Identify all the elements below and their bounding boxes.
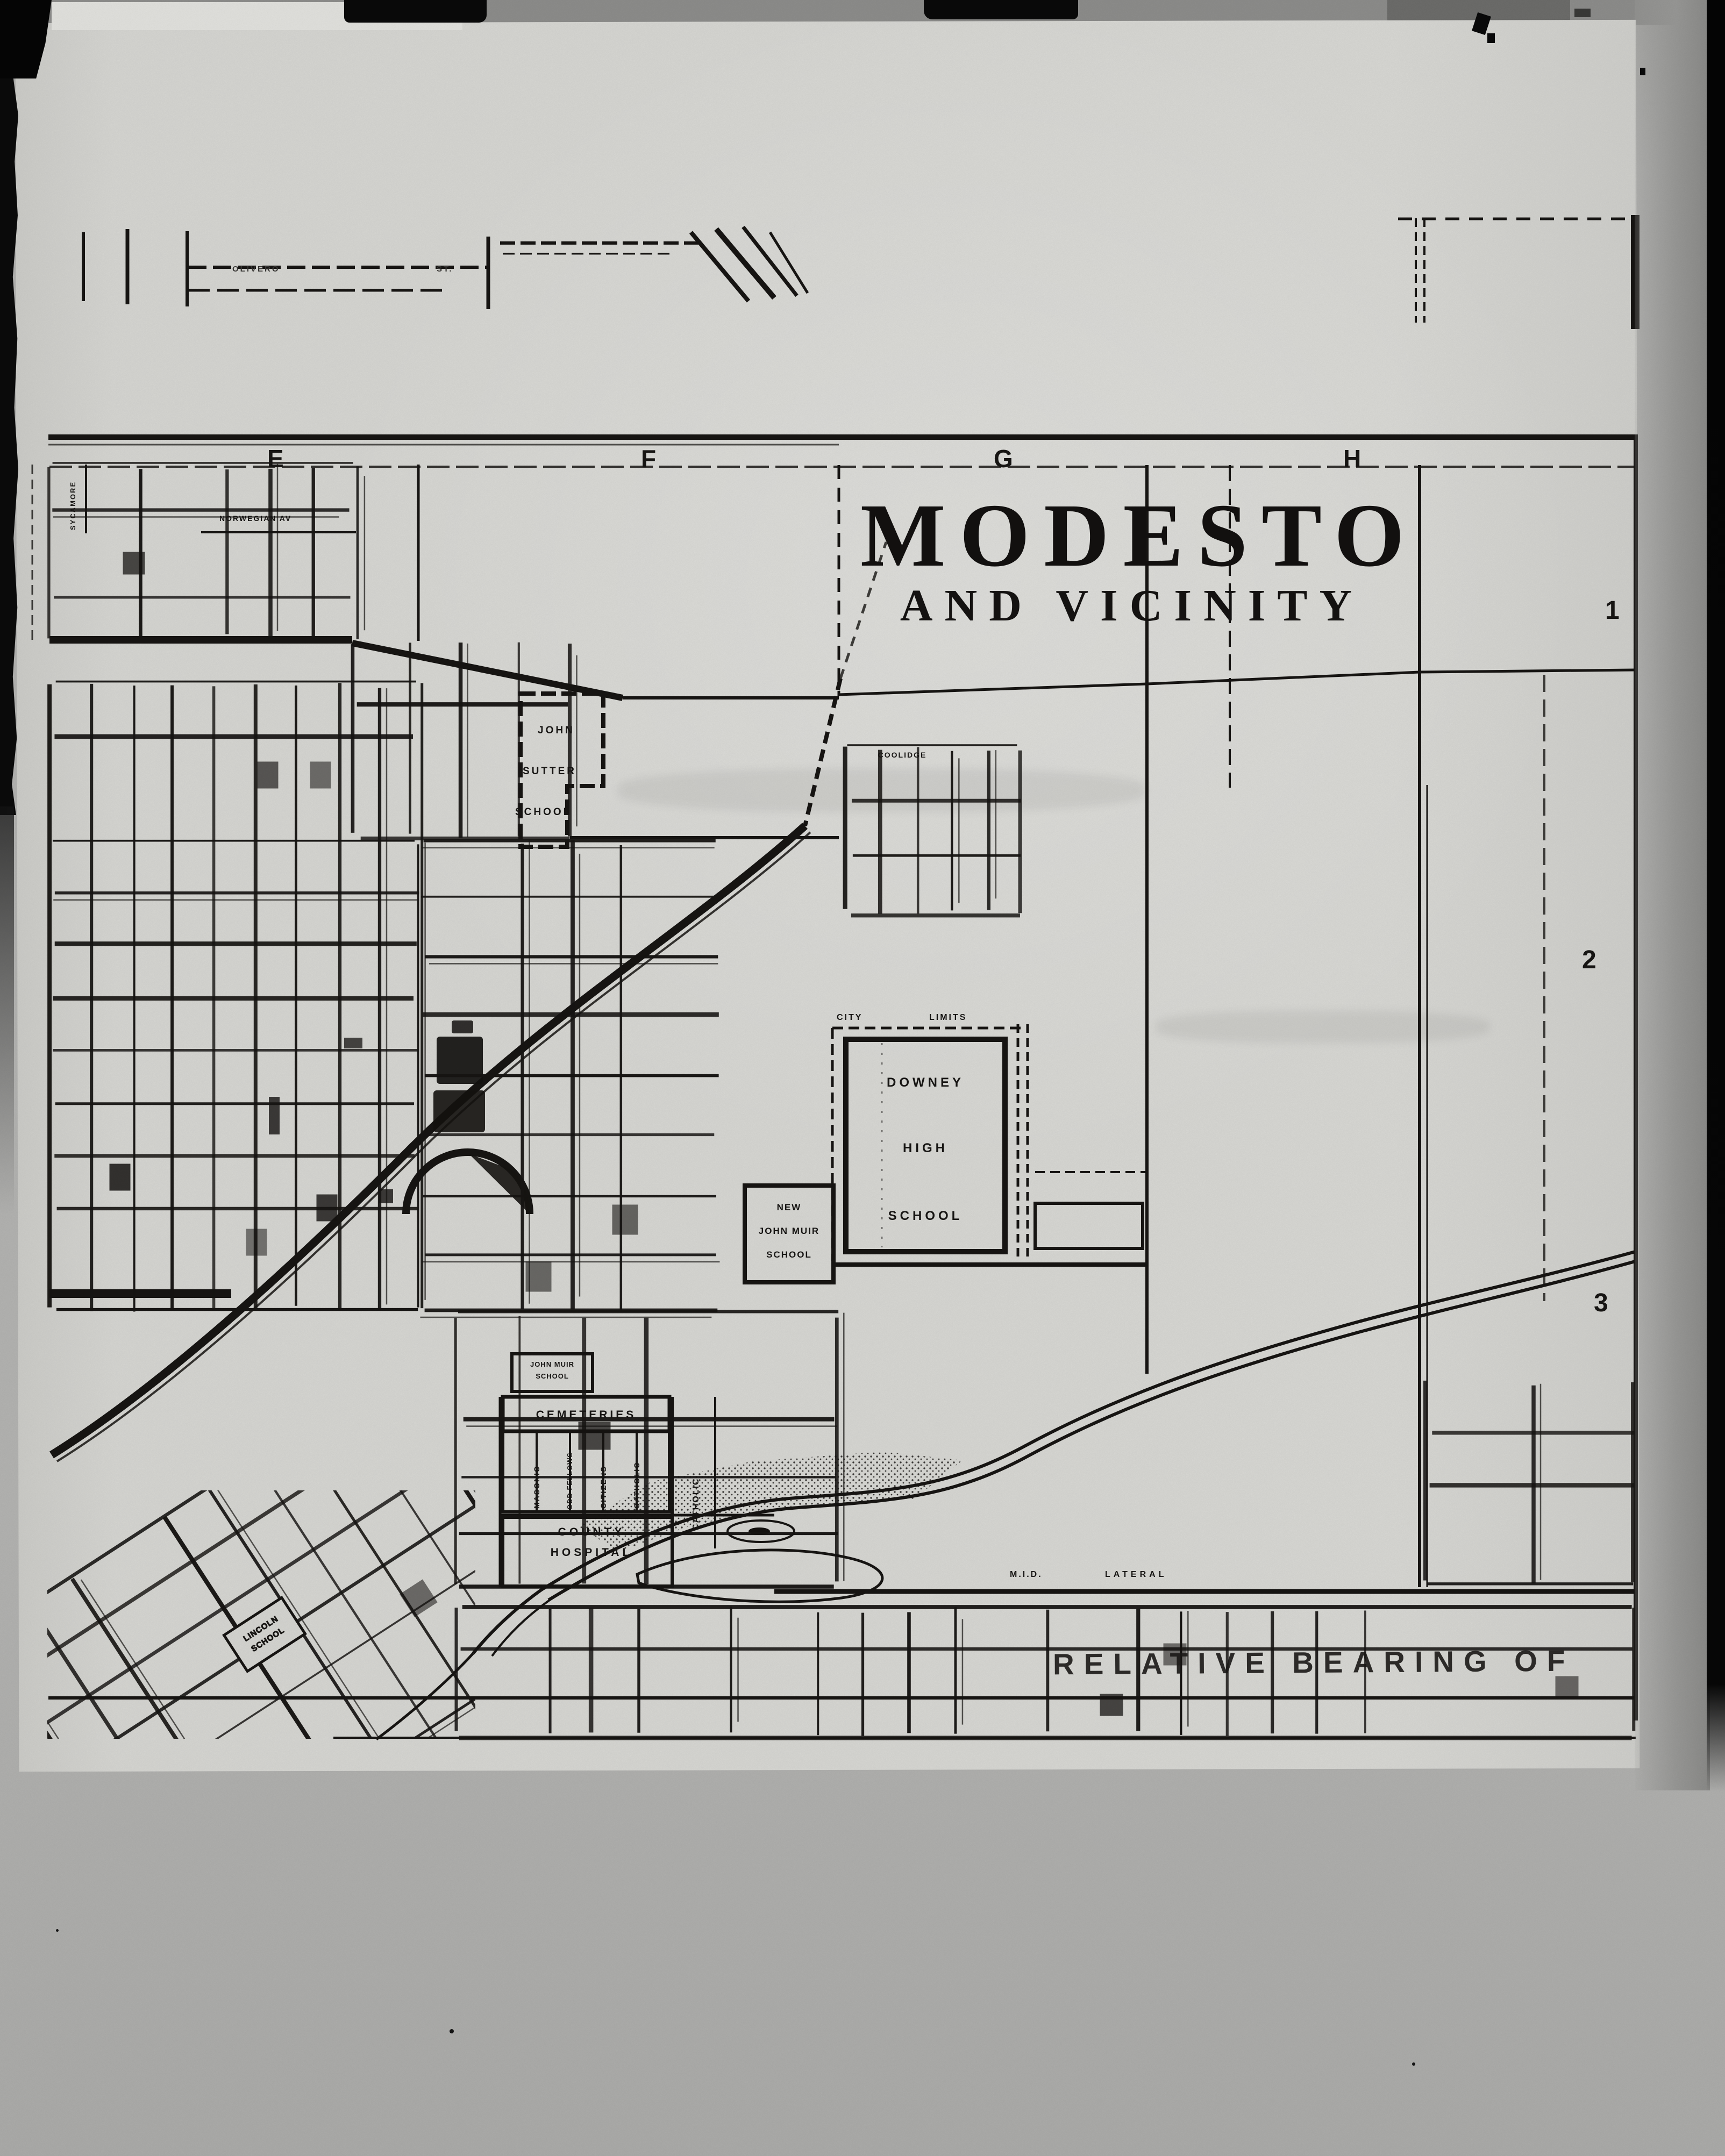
olivero-st-label: ST. [437,265,453,274]
lateral-label: LATERAL [1105,1570,1167,1580]
street-line [98,1632,681,2010]
downey-label: HIGH [846,1141,1005,1156]
cemeteries-label: CEMETERIES [503,1409,669,1422]
map-title: MODESTO [860,484,1403,588]
john-sutter-label: JOHN [538,725,575,737]
dust-speck [450,2029,454,2033]
cemetery-section-label: CATHOLIC [632,1462,641,1509]
new-john-muir-label: NEW [745,1202,833,1213]
cemetery-section-label: CITIZENS [599,1466,608,1509]
downey-label: SCHOOL [846,1209,1005,1224]
cemetery-section-label: ODD FELLOWS [566,1452,574,1510]
grid-row-1: 1 [1605,596,1620,625]
john-sutter-label: SCHOOL [515,806,572,818]
sycamore-label: SYCAMORE [69,481,77,530]
street-line [0,1693,126,2052]
city-block [258,762,278,788]
grid-column-e: E [267,444,294,473]
photo-edge-right-bar [1707,0,1725,1791]
catholic-cemetery-label: CATHOLIC [692,1478,701,1530]
new-john-muir-label: JOHN MUIR [745,1226,833,1237]
county-hospital-label: HOSPITAL [511,1546,672,1559]
city-block [317,1195,337,1221]
dust-speck [1412,2062,1415,2066]
city-block [123,552,145,574]
photo-mark [1640,68,1645,75]
photo-top-blob [924,0,1078,19]
city-block [579,1422,610,1450]
photo-mark [1487,33,1495,43]
street-line [0,1359,503,1737]
grid-row-2: 2 [1582,945,1596,975]
john-muir-label: JOHN MUIR [512,1360,593,1368]
city-block [310,762,331,788]
adjacent-sheet-fragment [83,215,1635,329]
city-limits-label: CITY [837,1013,862,1023]
norwegian-av-label: NORWEGIAN AV [219,514,291,523]
cemetery-section-label: MASONIC [532,1466,541,1509]
city-block [233,1780,270,1817]
city-block [1556,1676,1578,1698]
city-limits-label: LIMITS [929,1013,967,1023]
street-grid [49,463,1634,1738]
downey-label: DOWNEY [846,1075,1005,1090]
grid-column-h: H [1343,444,1370,473]
city-block [0,1810,34,1847]
street-line [70,1585,651,1962]
mid-label: M.I.D. [1010,1570,1043,1580]
photo-top-blob [344,0,487,23]
photo-edge-left-fade [0,806,14,1215]
john-sutter-label: SUTTER [523,766,576,777]
caption-relative-bearing: RELATIVE BEARING OF [1053,1644,1575,1682]
main-road [49,640,1635,698]
city-block [612,1205,638,1234]
county-hospital-label: COUNTY [511,1526,672,1539]
city-block [410,1447,447,1484]
city-block [400,1580,437,1617]
city-block [526,1262,551,1291]
scanned-map-photo: LINCOLN SCHOOL E F G H 1 2 3 MODESTO AND… [0,0,1725,2156]
city-block [1100,1694,1123,1716]
map-subtitle: AND VICINITY [860,580,1403,632]
city-block [246,1229,267,1255]
coolidge-label: COOLIDGE [859,751,945,759]
grid-column-g: G [994,444,1021,473]
city-block [0,1747,16,1784]
photo-mark [1574,9,1591,17]
street-line [0,1638,216,1994]
grid-column-f: F [641,444,668,473]
new-john-muir-label: SCHOOL [745,1250,833,1260]
dust-speck [56,1929,59,1932]
john-muir-label: SCHOOL [512,1372,593,1380]
grid-row-3: 3 [1594,1288,1608,1318]
photo-edge-right-shade [1635,0,1710,1790]
city-block [110,1164,130,1190]
olivero-label: OLIVERO [232,265,280,274]
